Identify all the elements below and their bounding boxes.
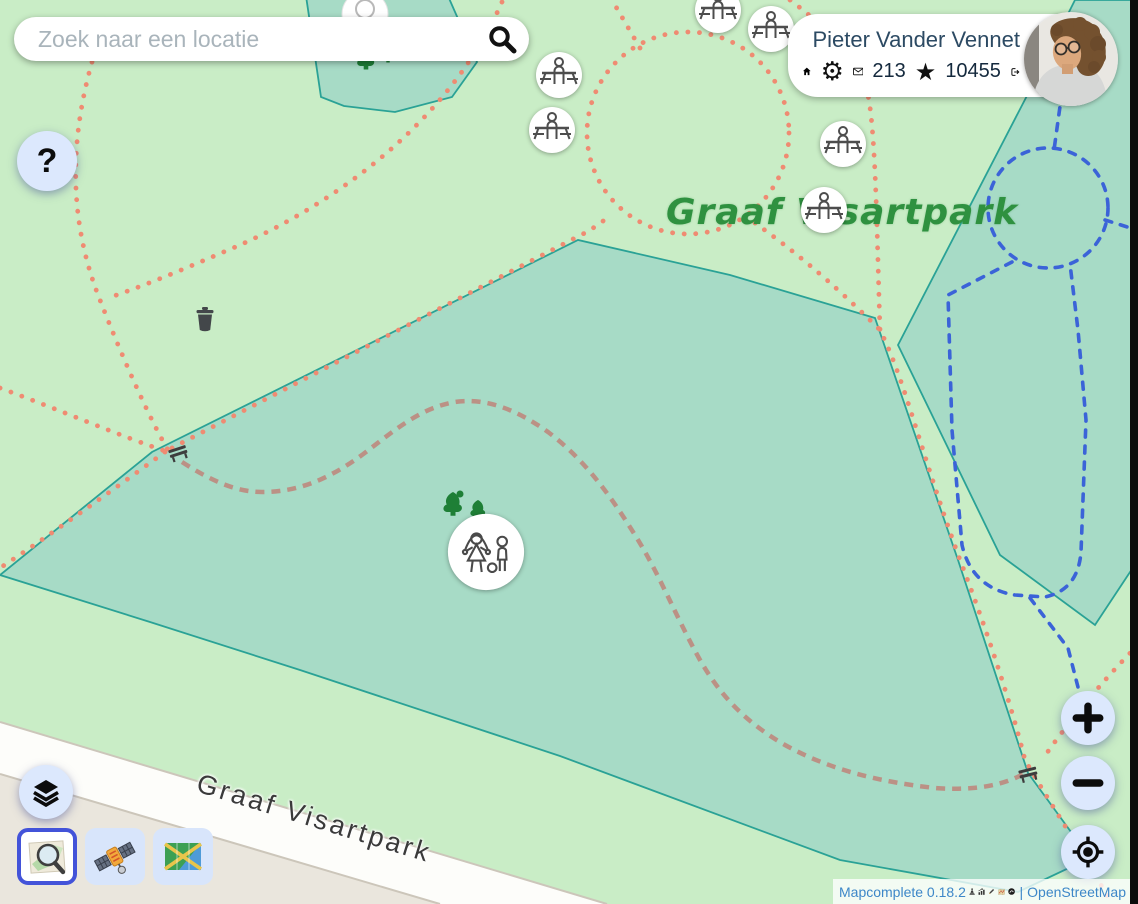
search-input[interactable] <box>36 25 487 54</box>
basemap-map-button[interactable] <box>153 828 213 885</box>
user-avatar[interactable] <box>1024 12 1118 106</box>
osm-copyright-link[interactable]: OpenStreetMap <box>1027 884 1126 900</box>
window-edge-strip <box>1130 0 1138 904</box>
picnic-table-marker[interactable] <box>819 120 867 168</box>
basemap-aerial-button[interactable] <box>85 828 145 885</box>
zoom-out-icon <box>1072 767 1104 799</box>
home-icon[interactable] <box>802 60 812 83</box>
stars-count: 10455 <box>945 60 1001 83</box>
zoom-in-icon <box>1072 702 1104 734</box>
background-layers-button[interactable] <box>19 765 73 819</box>
messages-count[interactable]: 213 <box>872 60 905 83</box>
attribution-app-version[interactable]: Mapcomplete 0.18.2 <box>839 884 966 900</box>
satellite-icon <box>93 835 137 879</box>
layers-icon <box>31 777 61 807</box>
zoom-out-button[interactable] <box>1061 756 1115 810</box>
playground-marker[interactable] <box>446 512 526 592</box>
help-button[interactable]: ? <box>17 131 77 191</box>
zoom-in-button[interactable] <box>1061 691 1115 745</box>
user-name[interactable]: Pieter Vander Vennet <box>802 27 1020 53</box>
stats-icon[interactable] <box>978 884 985 899</box>
osm-carto-icon <box>25 835 69 879</box>
avatar-photo <box>1024 12 1118 106</box>
logout-icon[interactable] <box>1010 60 1020 84</box>
help-question-icon: ? <box>37 142 58 181</box>
attribution-bar: Mapcomplete 0.18.2 | OpenStreetMap <box>833 879 1130 904</box>
community-icon[interactable] <box>1008 884 1015 899</box>
basemap-osm-button[interactable] <box>17 828 77 885</box>
mail-icon[interactable] <box>853 62 863 81</box>
statue-icon[interactable] <box>969 884 975 899</box>
geolocate-icon <box>1070 834 1106 870</box>
basemap-picker <box>17 828 213 885</box>
picnic-table-marker[interactable] <box>694 0 742 34</box>
location-search-bar <box>14 17 529 61</box>
folded-map-icon <box>161 835 205 879</box>
map-icon[interactable] <box>998 885 1005 899</box>
geolocate-button[interactable] <box>1061 825 1115 879</box>
star-icon: ★ <box>915 60 937 84</box>
pencil-icon[interactable] <box>988 884 995 899</box>
attribution-divider: | <box>1020 884 1024 900</box>
search-icon[interactable] <box>487 24 517 54</box>
gear-icon[interactable]: ⚙ <box>821 59 844 85</box>
picnic-table-marker[interactable] <box>535 51 583 99</box>
mapcomplete-app: Graaf Visartpark Graaf Visartpark ? Piet… <box>0 0 1138 904</box>
picnic-table-marker[interactable] <box>800 186 848 234</box>
picnic-table-marker[interactable] <box>528 106 576 154</box>
